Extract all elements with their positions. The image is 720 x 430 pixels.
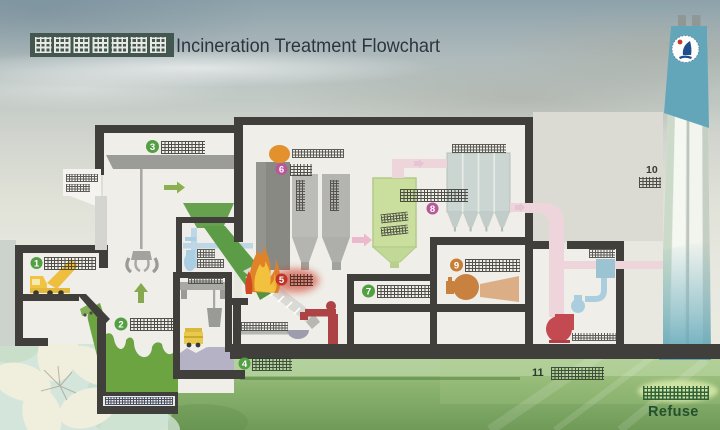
- svg-text:3: 3: [150, 142, 155, 153]
- svg-text:4: 4: [242, 359, 248, 370]
- svg-text:1: 1: [34, 259, 40, 270]
- svg-text:7: 7: [366, 287, 371, 298]
- svg-text:6: 6: [279, 165, 284, 176]
- svg-text:8: 8: [430, 204, 435, 215]
- svg-text:2: 2: [118, 320, 123, 331]
- svg-text:9: 9: [454, 261, 459, 272]
- svg-text:5: 5: [279, 275, 285, 286]
